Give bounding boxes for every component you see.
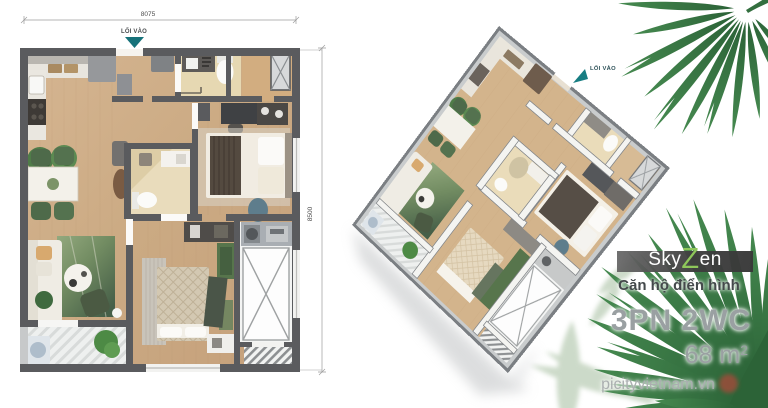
svg-text:8500: 8500: [307, 206, 314, 221]
svg-text:LỐI VÀO: LỐI VÀO: [121, 28, 147, 35]
svg-text:8075: 8075: [141, 11, 156, 18]
